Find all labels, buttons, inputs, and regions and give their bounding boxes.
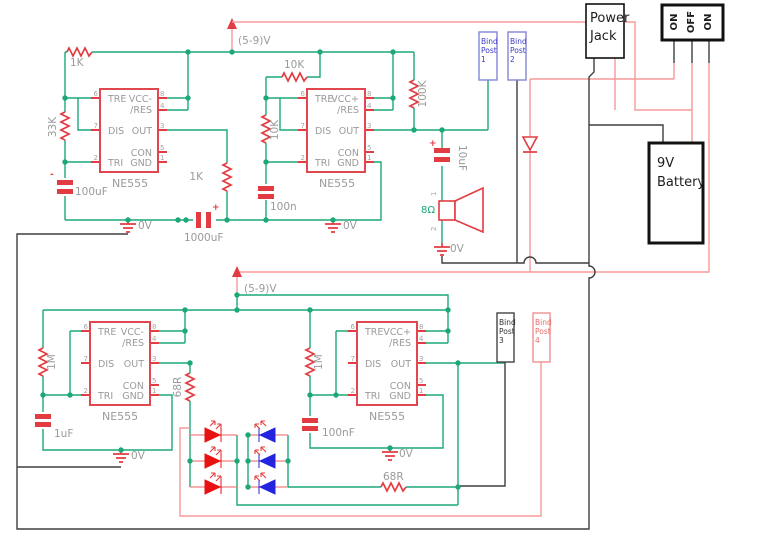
vcc-arrowhead-top: [227, 18, 237, 29]
capacitor-1000uf[interactable]: [196, 212, 211, 228]
bind-post-4-label-2: Post: [535, 327, 551, 336]
ic1-num-2: 2: [94, 154, 98, 162]
ic4-num-7: 7: [351, 355, 355, 363]
ic2-pin-res: /RES: [337, 105, 359, 116]
bind-post-2-label-1: Bind: [510, 37, 527, 46]
gnd-label-5: 0V: [399, 448, 414, 460]
ic2-pin-dis: DIS: [315, 126, 331, 137]
ic4-name: NE555: [369, 410, 405, 423]
label-c-100n: 100n: [270, 201, 297, 213]
wire-top-ground-return[interactable]: [442, 256, 589, 263]
led-red-1[interactable]: [205, 421, 221, 442]
bind-post-1[interactable]: Bind Post 1: [479, 32, 498, 80]
label-r-10k-left: 10K: [269, 119, 281, 140]
ic3-pin-gnd: GND: [122, 391, 144, 402]
ic2-pin-tri: TRI: [314, 158, 330, 169]
capacitor-1uf[interactable]: [35, 414, 51, 427]
label-r-10k-top: 10K: [284, 59, 305, 71]
switch-label-off: OFF: [686, 11, 697, 33]
bind-post-4-label-1: Bind: [535, 318, 552, 327]
toggle-switch[interactable]: ON OFF ON: [662, 5, 723, 40]
resistor-68r-left[interactable]: [186, 373, 194, 401]
led-block[interactable]: [190, 421, 288, 494]
wire-battery-negative[interactable]: [589, 125, 663, 143]
ic4-pin-dis: DIS: [365, 359, 381, 370]
bind-post-3[interactable]: Bind Post 3: [497, 313, 516, 362]
ic4-pin-res: /RES: [389, 338, 411, 349]
power-jack-label-1: Power: [590, 11, 630, 26]
polarity-100uf: -: [50, 170, 54, 180]
ic1-pin-dis: DIS: [108, 126, 124, 137]
ic3-num-5: 5: [152, 377, 156, 385]
ic2-name: NE555: [319, 177, 355, 190]
ic4-num-4: 4: [419, 335, 424, 343]
bind-post-3-label-2: Post: [499, 327, 515, 336]
gnd-label-2: 0V: [343, 220, 358, 232]
label-c-100uf: 100uF: [75, 186, 108, 198]
switch-label-on-1: ON: [669, 14, 680, 31]
diode[interactable]: [523, 137, 537, 152]
led-red-2[interactable]: [205, 447, 221, 468]
ic2-num-6: 6: [301, 90, 306, 98]
ic3-name: NE555: [102, 410, 138, 423]
label-r-68-left: 68R: [172, 377, 184, 398]
ic4-num-6: 6: [351, 323, 356, 331]
ic4-num-3: 3: [419, 355, 423, 363]
resistor-33k[interactable]: [61, 112, 69, 140]
ic1-num-8: 8: [160, 90, 164, 98]
ic1-num-7: 7: [94, 122, 98, 130]
ic1-num-4: 4: [160, 102, 165, 110]
polarity-10uf: +: [429, 139, 437, 149]
ic2-pin-vcc: VCC+: [331, 94, 359, 105]
ic3-pin-tri: TRI: [97, 391, 113, 402]
ic4-pin-vcc: VCC+: [383, 327, 411, 338]
ic1-num-1: 1: [160, 154, 164, 162]
wire-ic2-out-line[interactable]: [374, 52, 488, 130]
bind-post-3-label-1: Bind: [499, 318, 516, 327]
led-red-3[interactable]: [205, 473, 221, 494]
labels: (5-9)V (5-9)V 0V 0V 0V 0V 0V 1K 33K 1K 1…: [46, 35, 468, 483]
wire-ic3-vcc-res[interactable]: [159, 310, 185, 343]
wire-ic1-vcc-res[interactable]: [167, 52, 188, 110]
capacitor-10uf[interactable]: [434, 148, 450, 162]
label-c-1000uf: 1000uF: [184, 232, 223, 244]
bind-post-1-label-1: Bind: [481, 37, 498, 46]
ic3-num-2: 2: [84, 387, 88, 395]
ic4-pin-gnd: GND: [389, 391, 411, 402]
battery-label-2: Battery: [657, 175, 705, 190]
led-blue-1[interactable]: [255, 421, 275, 442]
ic3-num-8: 8: [152, 323, 156, 331]
ic4-num-8: 8: [419, 323, 423, 331]
ic4-pin-tri: TRI: [364, 391, 380, 402]
led-blue-2[interactable]: [255, 447, 275, 468]
ic1-pin-gnd: GND: [130, 158, 152, 169]
label-speaker-pin2: 2: [430, 227, 438, 231]
bind-post-2[interactable]: Bind Post 2: [508, 32, 527, 80]
ic3-num-6: 6: [84, 323, 89, 331]
wire-ic2-vcc-res[interactable]: [374, 52, 393, 110]
ground-symbol-speaker[interactable]: [434, 243, 450, 255]
led-blue-3[interactable]: [255, 473, 275, 494]
bind-post-2-label-2: Post: [510, 46, 526, 55]
ic1-num-3: 3: [160, 122, 164, 130]
switch-label-on-2: ON: [703, 14, 714, 31]
wire-led-rails[interactable]: [237, 435, 458, 505]
ic2-num-4: 4: [367, 102, 372, 110]
ic1-pin-out: OUT: [132, 126, 152, 137]
label-c-1uf: 1uF: [54, 428, 73, 440]
ic2-num-8: 8: [367, 90, 371, 98]
ic3-pin-tre: TRE: [97, 327, 116, 338]
label-speaker-pin1: 1: [430, 192, 438, 196]
ic1-pin-vcc: VCC-: [129, 94, 152, 105]
capacitor-100nf[interactable]: [302, 418, 318, 431]
ic2-num-1: 1: [367, 154, 371, 162]
vcc-label-top: (5-9)V: [238, 35, 271, 47]
ic3-pin-out: OUT: [124, 359, 144, 370]
ic4-num-1: 1: [419, 387, 423, 395]
ic2-num-7: 7: [301, 122, 305, 130]
bind-post-2-label-3: 2: [510, 55, 515, 64]
ic4-num-2: 2: [351, 387, 355, 395]
bind-post-1-label-2: Post: [481, 46, 497, 55]
ic2-num-5: 5: [367, 144, 371, 152]
bind-post-3-label-3: 3: [499, 336, 504, 345]
ic2-num-2: 2: [301, 154, 305, 162]
ic1-num-6: 6: [94, 90, 99, 98]
ic2-pin-gnd: GND: [337, 158, 359, 169]
ic4-pin-out: OUT: [391, 359, 411, 370]
label-r-1m-left: 1M: [46, 354, 58, 370]
schematic-canvas[interactable]: Power Jack ON OFF ON 9V Battery Bind Pos…: [0, 0, 768, 551]
resistor-68r-bottom[interactable]: [381, 483, 406, 491]
gnd-label-3: 0V: [450, 243, 465, 255]
vcc-label-bottom: (5-9)V: [244, 283, 277, 295]
bind-post-4[interactable]: Bind Post 4: [533, 313, 552, 362]
ic4-num-5: 5: [419, 377, 423, 385]
ic3-num-7: 7: [84, 355, 88, 363]
capacitor-100uf[interactable]: [57, 180, 73, 194]
power-jack[interactable]: Power Jack: [586, 4, 630, 58]
ic2-num-3: 3: [367, 122, 371, 130]
wire-ic1-input-pins[interactable]: [65, 98, 91, 162]
resistor-1k-top[interactable]: [67, 48, 92, 56]
label-c-10uf: 10uF: [456, 145, 468, 171]
ic1-name: NE555: [112, 177, 148, 190]
label-r-1k-mid: 1K: [189, 171, 204, 183]
ic3-num-1: 1: [152, 387, 156, 395]
ic3-num-4: 4: [152, 335, 157, 343]
bind-post-4-label-3: 4: [535, 336, 540, 345]
battery-label-1: 9V: [657, 156, 674, 171]
ic4-pin-tre: TRE: [364, 327, 383, 338]
label-r-100k: 100K: [417, 79, 429, 107]
label-speaker-impedance: 8Ω: [421, 205, 435, 216]
ic1-pin-res: /RES: [130, 105, 152, 116]
label-r-33k: 33K: [47, 116, 59, 137]
resistor-10k-top[interactable]: [282, 73, 307, 81]
gnd-label-4: 0V: [131, 450, 146, 462]
label-r-1k-top: 1K: [70, 57, 85, 69]
wire-bind-post-3[interactable]: [460, 362, 505, 486]
bind-post-1-label-3: 1: [481, 55, 486, 64]
polarity-1000uf: +: [212, 203, 220, 213]
ic1-pin-tri: TRI: [107, 158, 123, 169]
resistor-1k-mid[interactable]: [223, 163, 231, 191]
label-c-100nf: 100nF: [322, 427, 355, 439]
ic1-num-5: 5: [160, 144, 164, 152]
ic3-pin-res: /RES: [122, 338, 144, 349]
ic1-pin-tre: TRE: [107, 94, 126, 105]
capacitor-100n[interactable]: [258, 186, 274, 199]
label-r-68-bottom: 68R: [383, 471, 404, 483]
switch-pin-stubs[interactable]: [674, 40, 709, 63]
ic3-pin-dis: DIS: [98, 359, 114, 370]
speaker[interactable]: [439, 188, 483, 232]
ic3-pin-vcc: VCC-: [121, 327, 144, 338]
gnd-label-1: 0V: [138, 220, 153, 232]
label-r-1m-right: 1M: [313, 354, 325, 370]
battery-9v[interactable]: 9V Battery: [649, 143, 705, 243]
ic3-num-3: 3: [152, 355, 156, 363]
power-jack-label-2: Jack: [589, 29, 617, 44]
ic2-pin-out: OUT: [339, 126, 359, 137]
wire-ic4-vcc-out[interactable]: [426, 331, 505, 363]
